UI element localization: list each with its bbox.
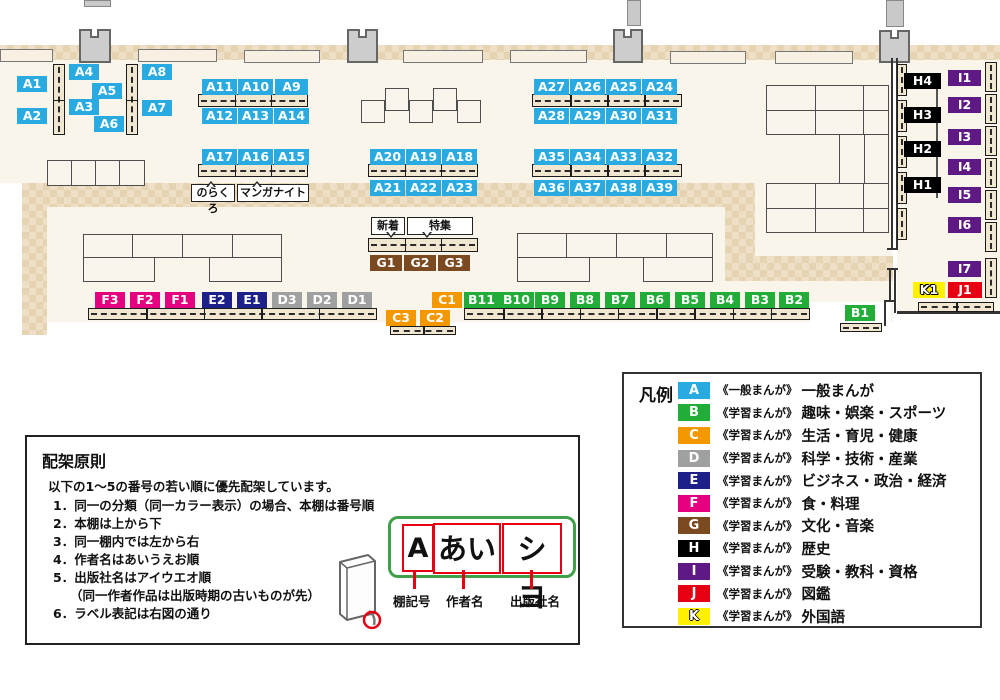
shelf-label-D3: D3: [272, 292, 302, 308]
outer-structure: [627, 0, 641, 26]
shelf-label-A6: A6: [94, 116, 124, 132]
legend-category: 趣味・娯楽・スポーツ: [802, 402, 947, 423]
map-tag: 新着: [371, 217, 405, 235]
bookshelf: [390, 326, 456, 335]
map-tag: のらくろ: [191, 184, 235, 202]
bookshelf-dash: [990, 97, 992, 121]
bookshelf-divider: [503, 309, 505, 319]
shelf-label-A16: A16: [238, 149, 273, 165]
shelf-label-A11: A11: [202, 79, 237, 95]
legend-chip: A: [678, 382, 710, 399]
legend-chip: K: [678, 608, 710, 625]
shelf-label-A34: A34: [570, 149, 605, 165]
legend-kind: 《学習まんが》: [717, 450, 798, 466]
legend-panel: 凡例 A《一般まんが》一般まんがB《学習まんが》趣味・娯楽・スポーツC《学習まん…: [622, 372, 982, 628]
principles-intro: 以下の1～5の番号の若い順に優先配架しています。: [48, 476, 339, 495]
shelf-label-I4: I4: [948, 159, 981, 175]
legend-title: 凡例: [639, 381, 673, 406]
shelf-label-F2: F2: [130, 292, 160, 308]
wall-counter: [0, 49, 53, 62]
shelf-label-A14: A14: [274, 108, 309, 124]
bookshelf-divider: [733, 309, 735, 319]
bookshelf: [918, 302, 994, 312]
shelf-label-D2: D2: [307, 292, 337, 308]
legend-item: H《学習まんが》歴史: [678, 537, 976, 560]
bookshelf: [985, 126, 997, 156]
bookshelf-divider: [235, 165, 237, 176]
bookshelf-dash: [901, 139, 903, 165]
shelf-label-A12: A12: [202, 108, 237, 124]
bookshelf: [985, 62, 997, 92]
bookshelf: [126, 64, 138, 135]
bookshelf-divider: [644, 165, 646, 176]
table-block: [71, 160, 96, 186]
bookshelf-divider: [570, 165, 572, 176]
legend-kind: 《学習まんが》: [717, 563, 798, 579]
legend-kind: 《学習まんが》: [717, 473, 798, 489]
legend-category: 生活・育児・健康: [802, 425, 918, 446]
legend-item: D《学習まんが》科学・技術・産業: [678, 447, 976, 470]
shelf-label-B3: B3: [745, 292, 775, 308]
bookshelf: [985, 94, 997, 124]
shelf-label-F1: F1: [165, 292, 195, 308]
table-block: [361, 100, 385, 123]
shelf-label-B11: B11: [464, 292, 499, 308]
bookshelf: [88, 308, 377, 320]
legend-item: J《学習まんが》図鑑: [678, 582, 976, 605]
legend-item: I《学習まんが》受験・教科・資格: [678, 560, 976, 583]
table-block: [83, 257, 155, 282]
shelf-label-E2: E2: [202, 292, 232, 308]
legend-item: B《学習まんが》趣味・娯楽・スポーツ: [678, 402, 976, 425]
legend-category: 食・料理: [802, 493, 860, 514]
bookshelf-divider: [956, 303, 958, 311]
pointer-line: [462, 570, 465, 589]
shelf-label-A23: A23: [442, 180, 477, 196]
bookshelf: [840, 323, 882, 332]
table-block: [766, 183, 816, 209]
principle-line: 4．作者名はあいうえお順: [53, 551, 374, 569]
legend-kind: 《学習まんが》: [717, 495, 798, 511]
bookshelf-divider: [405, 239, 407, 251]
bookshelf-divider: [271, 165, 273, 176]
legend-chip: E: [678, 472, 710, 489]
principles-title: 配架原則: [42, 448, 106, 472]
bookshelf-divider: [607, 95, 609, 106]
principle-line: 5．出版社名はアイウエオ順: [53, 569, 374, 587]
table-block: [863, 208, 889, 233]
shelf-label-A35: A35: [534, 149, 569, 165]
bookshelf-divider: [146, 309, 148, 319]
legend-chip: H: [678, 540, 710, 557]
pillar-notch: [623, 29, 632, 38]
principle-line: 6．ラベル表記は右図の通り: [53, 605, 374, 623]
legend-kind: 《学習まんが》: [717, 586, 798, 602]
shelf-label-B5: B5: [675, 292, 705, 308]
table-block: [566, 233, 617, 258]
bookshelf-dash: [990, 225, 992, 249]
bookshelf: [464, 308, 810, 320]
shelf-label-G1: G1: [370, 255, 402, 271]
wall-segment: [887, 268, 898, 270]
table-block: [766, 85, 816, 111]
shelf-label-H3: H3: [904, 107, 941, 123]
label-diagram: A あい シヨ: [388, 516, 576, 578]
shelf-label-E1: E1: [237, 292, 267, 308]
principle-line: 2．本棚は上から下: [53, 515, 374, 533]
table-block: [666, 233, 713, 258]
table-block: [815, 183, 864, 209]
bookshelf-dash: [371, 170, 475, 172]
legend-chip: B: [678, 404, 710, 421]
table-block: [232, 234, 282, 258]
bookshelf-dash: [990, 161, 992, 185]
principles-list: 1．同一の分類（同一カラー表示）の場合、本棚は番号順2．本棚は上から下3．同一棚…: [53, 497, 374, 623]
bookshelf-divider: [261, 309, 263, 319]
legend-chip: I: [678, 563, 710, 580]
legend-category: 科学・技術・産業: [802, 448, 918, 469]
bookshelf-divider: [405, 165, 407, 176]
table-block: [182, 234, 233, 258]
shelf-label-A27: A27: [534, 79, 569, 95]
bookshelf: [198, 94, 308, 107]
shelf-label-C3: C3: [386, 310, 416, 326]
shelf-label-A18: A18: [442, 149, 477, 165]
shelf-label-B4: B4: [710, 292, 740, 308]
bookshelf: [532, 94, 682, 107]
legend-category: 外国語: [802, 606, 846, 627]
legend-rows: A《一般まんが》一般まんがB《学習まんが》趣味・娯楽・スポーツC《学習まんが》生…: [678, 379, 976, 628]
shelf-label-A21: A21: [370, 180, 405, 196]
legend-kind: 《学習まんが》: [717, 427, 798, 443]
shelf-label-B7: B7: [605, 292, 635, 308]
pointer-line: [530, 570, 533, 589]
shelf-label-A25: A25: [606, 79, 641, 95]
table-block: [47, 160, 72, 186]
table-block: [209, 257, 282, 282]
bookshelf: [985, 190, 997, 220]
bookshelf-divider: [618, 309, 620, 319]
shelf-label-A3: A3: [69, 99, 99, 115]
bookshelf: [368, 164, 478, 177]
legend-kind: 《学習まんが》: [717, 608, 798, 624]
shelf-label-A38: A38: [606, 180, 641, 196]
shelf-label-B10: B10: [499, 292, 534, 308]
bookshelf-divider: [204, 309, 206, 319]
wall-counter: [403, 50, 483, 63]
principle-line: 1．同一の分類（同一カラー表示）の場合、本棚は番号順: [53, 497, 374, 515]
bookshelf-dash: [843, 327, 879, 329]
bookshelf-divider: [271, 95, 273, 106]
shelf-map-page: A1A2A4A5A3A6A8A7A11A10A9A12A13A14A17A16A…: [0, 0, 1000, 700]
wall-segment: [889, 270, 891, 302]
principle-line: （同一作者作品は出版時期の古いものが先）: [53, 587, 374, 605]
bookshelf-divider: [54, 100, 64, 102]
wall-counter: [510, 50, 587, 63]
shelf-label-I1: I1: [948, 70, 981, 86]
wall-segment: [887, 248, 898, 250]
principle-line: 3．同一棚内では左から右: [53, 533, 374, 551]
bookshelf-dash: [990, 129, 992, 153]
table-block: [766, 110, 816, 135]
bookshelf-dash: [467, 313, 807, 315]
shelf-label-I3: I3: [948, 129, 981, 145]
label-author: あい: [433, 523, 501, 574]
table-block: [863, 85, 889, 111]
bookshelf: [985, 158, 997, 188]
outer-structure: [84, 0, 111, 7]
bookshelf-dash: [91, 313, 374, 315]
shelf-label-I2: I2: [948, 97, 981, 113]
shelf-label-I7: I7: [948, 261, 981, 277]
bookshelf-divider: [656, 309, 658, 319]
book-icon: [328, 547, 384, 631]
shelf-label-C1: C1: [432, 292, 462, 308]
legend-item: F《学習まんが》食・料理: [678, 492, 976, 515]
shelf-label-A15: A15: [274, 149, 309, 165]
bookshelf-divider: [771, 309, 773, 319]
bookshelf-dash: [201, 100, 305, 102]
floor-map: A1A2A4A5A3A6A8A7A11A10A9A12A13A14A17A16A…: [0, 0, 1000, 360]
wall-segment: [894, 270, 896, 313]
shelf-label-A28: A28: [534, 108, 569, 124]
legend-category: 歴史: [802, 538, 831, 559]
shelf-label-A10: A10: [238, 79, 273, 95]
bookshelf-divider: [570, 95, 572, 106]
walkway-left-vertical: [22, 183, 47, 335]
shelf-label-B1: B1: [845, 305, 875, 321]
bookshelf-divider: [580, 309, 582, 319]
pillar-notch: [358, 29, 367, 38]
legend-chip: C: [678, 427, 710, 444]
table-block: [839, 134, 865, 185]
legend-category: 一般まんが: [802, 380, 875, 401]
shelf-label-H4: H4: [904, 73, 941, 89]
legend-kind: 《一般まんが》: [717, 382, 798, 398]
shelf-label-A24: A24: [642, 79, 677, 95]
bookshelf-divider: [423, 327, 425, 334]
shelf-label-D1: D1: [342, 292, 372, 308]
legend-category: 図鑑: [802, 583, 831, 604]
shelf-label-B8: B8: [570, 292, 600, 308]
wall-counter: [670, 51, 746, 64]
shelf-label-A5: A5: [92, 83, 122, 99]
legend-category: 文化・音楽: [802, 515, 875, 536]
bookshelf-dash: [901, 67, 903, 93]
table-block: [766, 208, 816, 233]
shelf-label-A17: A17: [202, 149, 237, 165]
pillar: [879, 30, 910, 63]
legend-chip: D: [678, 450, 710, 467]
table-block: [409, 100, 433, 123]
shelf-label-G3: G3: [438, 255, 470, 271]
table-block: [83, 234, 133, 258]
table-block: [643, 257, 713, 282]
legend-chip: J: [678, 585, 710, 602]
table-block: [815, 110, 864, 135]
shelf-label-A2: A2: [17, 108, 47, 124]
legend-kind: 《学習まんが》: [717, 405, 798, 421]
shelf-label-I5: I5: [948, 187, 981, 203]
shelf-label-A30: A30: [606, 108, 641, 124]
pillar: [79, 29, 111, 63]
label-publisher: シヨ: [502, 523, 562, 574]
bookshelf: [985, 222, 997, 252]
bookshelf: [985, 258, 997, 298]
shelf-label-A7: A7: [142, 100, 172, 116]
shelf-label-F3: F3: [95, 292, 125, 308]
bookshelf-divider: [441, 239, 443, 251]
bookshelf-divider: [541, 309, 543, 319]
caption-publisher: 出版社名: [510, 591, 560, 610]
legend-item: E《学習まんが》ビジネス・政治・経済: [678, 469, 976, 492]
shelf-label-A20: A20: [370, 149, 405, 165]
bookshelf-divider: [319, 309, 321, 319]
shelf-label-A13: A13: [238, 108, 273, 124]
pointer-line: [413, 570, 416, 589]
shelf-label-A19: A19: [406, 149, 441, 165]
bookshelf-dash: [901, 175, 903, 201]
bookshelf-dash: [201, 170, 305, 172]
pillar-notch: [90, 29, 99, 38]
bookshelf-divider: [644, 95, 646, 106]
bookshelf: [532, 164, 682, 177]
bookshelf-dash: [371, 244, 475, 246]
bookshelf-divider: [235, 95, 237, 106]
shelf-label-B2: B2: [779, 292, 809, 308]
legend-item: G《学習まんが》文化・音楽: [678, 515, 976, 538]
bookshelf-divider: [607, 165, 609, 176]
bookshelf-divider: [694, 309, 696, 319]
legend-kind: 《学習まんが》: [717, 540, 798, 556]
shelf-label-K1: K1: [913, 282, 945, 298]
table-block: [616, 233, 667, 258]
shelf-label-A32: A32: [642, 149, 677, 165]
table-block: [457, 100, 481, 123]
table-block: [815, 208, 864, 233]
legend-category: ビジネス・政治・経済: [802, 470, 947, 491]
shelf-label-A36: A36: [534, 180, 569, 196]
table-block: [95, 160, 120, 186]
wall-segment: [891, 58, 893, 250]
wall-counter: [244, 50, 320, 63]
shelf-label-A29: A29: [570, 108, 605, 124]
map-tag: 特集: [407, 217, 473, 235]
caption-shelf-code: 棚記号: [393, 591, 431, 610]
shelf-label-A4: A4: [69, 64, 99, 80]
shelf-label-A31: A31: [642, 108, 677, 124]
pillar-notch: [890, 30, 899, 39]
table-block: [385, 88, 409, 111]
shelf-label-G2: G2: [404, 255, 436, 271]
shelf-label-H1: H1: [904, 177, 941, 193]
outside-area: [0, 183, 22, 322]
legend-chip: F: [678, 495, 710, 512]
shelf-label-A9: A9: [275, 79, 308, 95]
bookshelf-dash: [990, 261, 992, 295]
shelf-label-A1: A1: [17, 76, 47, 92]
table-block: [132, 234, 183, 258]
wall-counter: [138, 49, 217, 62]
pillar: [613, 29, 643, 63]
legend-item: C《学習まんが》生活・育児・健康: [678, 424, 976, 447]
legend-item: A《一般まんが》一般まんが: [678, 379, 976, 402]
table-block: [863, 183, 889, 209]
shelf-label-A8: A8: [142, 64, 172, 80]
shelf-label-A39: A39: [642, 180, 677, 196]
table-block: [119, 160, 145, 186]
shelf-label-A33: A33: [606, 149, 641, 165]
shelf-label-A22: A22: [406, 180, 441, 196]
shelf-label-C2: C2: [420, 310, 450, 326]
table-block: [864, 134, 889, 185]
wall-counter: [775, 51, 853, 64]
map-tag: マンガナイト: [237, 184, 309, 202]
legend-category: 受験・教科・資格: [802, 561, 918, 582]
wall-segment: [884, 300, 886, 326]
bookshelf-dash: [901, 211, 903, 237]
shelf-label-B9: B9: [535, 292, 565, 308]
bookshelf-divider: [441, 165, 443, 176]
outer-structure: [886, 0, 904, 27]
shelf-label-A26: A26: [570, 79, 605, 95]
shelf-label-A37: A37: [570, 180, 605, 196]
shelf-label-H2: H2: [904, 141, 941, 157]
table-block: [433, 88, 457, 111]
legend-kind: 《学習まんが》: [717, 518, 798, 534]
table-block: [815, 85, 864, 111]
shelf-label-B6: B6: [640, 292, 670, 308]
bookshelf: [897, 208, 907, 240]
shelf-label-I6: I6: [948, 217, 981, 233]
label-shelf-code: A: [402, 524, 434, 572]
shelf-label-J1: J1: [948, 282, 982, 298]
walkway-right-horizontal: [725, 256, 893, 281]
legend-chip: G: [678, 517, 710, 534]
bookshelf-dash: [990, 65, 992, 89]
table-block: [517, 257, 590, 282]
legend-item: K《学習まんが》外国語: [678, 605, 976, 628]
bookshelf-divider: [127, 100, 137, 102]
pillar: [347, 29, 378, 63]
caption-author: 作者名: [446, 591, 484, 610]
table-block: [517, 233, 567, 258]
bookshelf-dash: [901, 103, 903, 129]
table-block: [863, 110, 889, 135]
bookshelf: [53, 64, 65, 135]
bookshelf-dash: [990, 193, 992, 217]
